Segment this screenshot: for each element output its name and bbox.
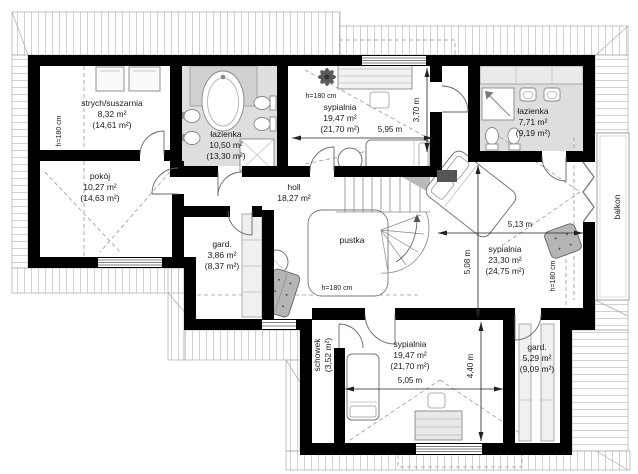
svg-text:5,08 m: 5,08 m (463, 249, 472, 274)
floor-plan-page: strych/suszarnia 8,32 m² (14,61 m²) łazi… (0, 0, 638, 474)
room-label-balkon: balkon (612, 194, 622, 219)
svg-text:holl: holl (287, 182, 300, 192)
void-outline (308, 210, 388, 296)
wardrobe-icon (480, 66, 583, 84)
svg-text:(24,75 m²): (24,75 m²) (485, 266, 524, 276)
svg-text:5,13 m: 5,13 m (508, 220, 533, 229)
svg-text:sypialnia: sypialnia (323, 102, 356, 112)
svg-text:5,05 m: 5,05 m (398, 376, 423, 385)
svg-text:10,27 m²: 10,27 m² (83, 182, 117, 192)
svg-text:19,47 m²: 19,47 m² (393, 350, 427, 360)
room-label-lazienka-1: łazienka 10,50 m² (13,30 m²) (206, 129, 245, 161)
plant-icon (318, 68, 336, 86)
bidet-icon (254, 117, 276, 131)
svg-text:sypialnia: sypialnia (488, 244, 521, 254)
svg-text:gard.: gard. (527, 342, 546, 352)
svg-text:5,29 m²: 5,29 m² (523, 353, 552, 363)
railing (262, 320, 296, 329)
svg-text:18,27 m²: 18,27 m² (277, 193, 311, 203)
svg-text:23,30 m²: 23,30 m² (488, 255, 522, 265)
window (362, 56, 426, 65)
room-label-sypialnia-3: sypialnia 19,47 m² (21,70 m²) (390, 339, 429, 371)
svg-text:(9,19 m²): (9,19 m²) (516, 128, 551, 138)
toilet-icon (254, 96, 276, 110)
toilet-icon (486, 128, 499, 151)
svg-text:pokój: pokój (90, 171, 110, 181)
svg-text:gard.: gard. (212, 239, 231, 249)
room-label-pustka: pustka (339, 235, 364, 245)
shower-icon (482, 88, 514, 120)
svg-text:(13,30 m²): (13,30 m²) (206, 151, 245, 161)
svg-text:(8,37 m²): (8,37 m²) (205, 261, 240, 271)
svg-text:8,32 m²: 8,32 m² (98, 109, 127, 119)
room-label-lazienka-2: łazienka 7,71 m² (9,19 m²) (516, 106, 551, 138)
room-label-schowek: schowek (3,52 m²) (312, 338, 333, 373)
room-label-sypialnia-1: sypialnia 19,47 m² (21,70 m²) (320, 102, 359, 134)
svg-text:3,86 m²: 3,86 m² (208, 250, 237, 260)
svg-text:(21,70 m²): (21,70 m²) (390, 361, 429, 371)
svg-text:strych/suszarnia: strych/suszarnia (81, 98, 143, 108)
svg-text:schowek: schowek (312, 338, 322, 372)
svg-text:5,95 m: 5,95 m (378, 125, 403, 134)
height-label: h=180 cm (550, 260, 557, 291)
window (98, 258, 162, 267)
svg-text:(9,09 m²): (9,09 m²) (520, 364, 555, 374)
svg-text:sypialnia: sypialnia (393, 339, 426, 349)
svg-text:7,71 m²: 7,71 m² (519, 117, 548, 127)
svg-text:10,50 m²: 10,50 m² (209, 140, 243, 150)
svg-text:balkon: balkon (612, 194, 622, 219)
height-label: h=180 cm (56, 115, 63, 146)
height-label: h=180 cm (306, 93, 337, 100)
svg-text:(21,70 m²): (21,70 m²) (320, 124, 359, 134)
svg-text:łazienka: łazienka (517, 106, 548, 116)
room-label-sypialnia-2: sypialnia 23,30 m² (24,75 m²) (485, 244, 524, 276)
svg-text:(14,61 m²): (14,61 m²) (92, 120, 131, 130)
svg-text:(14,63 m²): (14,63 m²) (80, 193, 119, 203)
svg-text:19,47 m²: 19,47 m² (323, 113, 357, 123)
bed-icon (347, 354, 379, 420)
floor-plan: strych/suszarnia 8,32 m² (14,61 m²) łazi… (0, 0, 638, 474)
svg-text:łazienka: łazienka (210, 129, 241, 139)
svg-text:4,40 m: 4,40 m (466, 353, 475, 378)
height-label: h=180 cm (322, 285, 353, 292)
svg-text:(3,52 m²): (3,52 m²) (323, 338, 333, 373)
svg-text:pustka: pustka (339, 235, 364, 245)
window (416, 444, 482, 454)
svg-text:3,70 m: 3,70 m (412, 97, 421, 122)
